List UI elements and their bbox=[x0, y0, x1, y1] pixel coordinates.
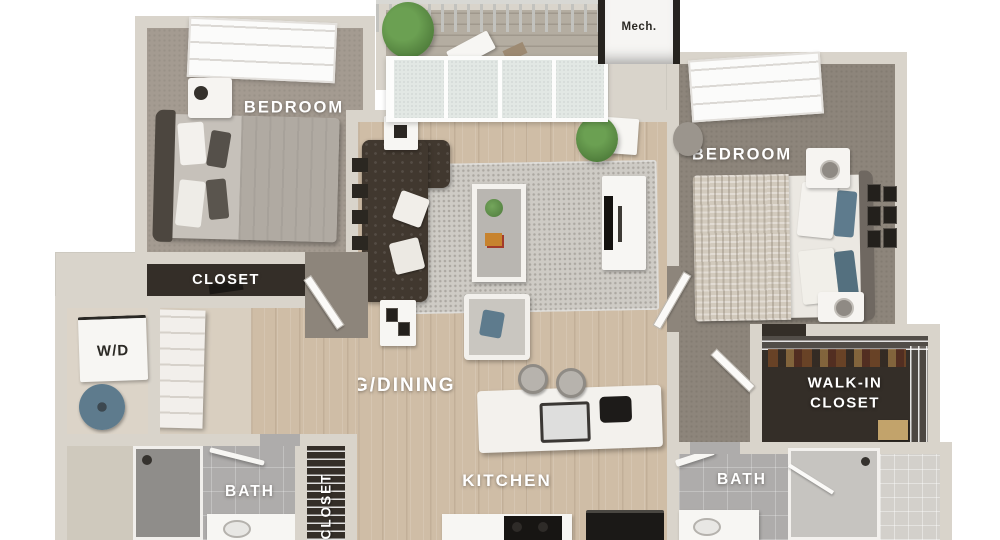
shower bbox=[788, 448, 880, 540]
washer-dryer: W/D bbox=[78, 315, 148, 382]
bedroom-right-label: BEDROOM bbox=[692, 146, 792, 165]
hall-closet-label: CLOSET bbox=[319, 473, 334, 540]
pillow-dark bbox=[206, 178, 230, 220]
soundbar bbox=[618, 206, 622, 242]
stove bbox=[504, 516, 562, 540]
pillow-dark bbox=[206, 130, 232, 169]
closet-left-label: CLOSET bbox=[192, 272, 260, 288]
walk-in-line2: CLOSET bbox=[808, 393, 883, 413]
coffee-maker bbox=[599, 396, 632, 423]
shower-head bbox=[142, 455, 152, 465]
nightstand bbox=[188, 78, 232, 118]
shower-door bbox=[788, 464, 834, 495]
bath-left: BATH bbox=[55, 434, 307, 540]
burner bbox=[512, 522, 522, 532]
sofa bbox=[362, 140, 450, 302]
armchair bbox=[464, 294, 530, 360]
storage-basket bbox=[878, 420, 908, 440]
bar-stool bbox=[518, 364, 548, 394]
books bbox=[485, 233, 502, 246]
bath-right: BATH bbox=[667, 442, 952, 540]
table-lamp bbox=[834, 298, 854, 318]
shower bbox=[133, 446, 203, 540]
duvet bbox=[238, 116, 339, 243]
hall-closet: CLOSET bbox=[295, 434, 357, 540]
doorway-floor bbox=[260, 434, 300, 446]
decor-frame bbox=[398, 322, 410, 336]
table-lamp bbox=[820, 160, 840, 180]
laundry-basket bbox=[79, 384, 125, 430]
pillow bbox=[177, 122, 206, 166]
walk-in-line1: WALK-IN bbox=[808, 374, 883, 394]
headboard bbox=[152, 110, 175, 242]
tv bbox=[604, 196, 613, 250]
bath-right-label: BATH bbox=[717, 471, 767, 489]
nightstand bbox=[806, 148, 850, 188]
nightstand bbox=[818, 292, 864, 322]
decor-item bbox=[394, 125, 407, 138]
window-blinds bbox=[187, 17, 337, 83]
side-table bbox=[380, 300, 416, 346]
hallway-nook bbox=[148, 296, 251, 446]
laundry-room: W/D bbox=[55, 296, 160, 446]
dresser bbox=[154, 309, 205, 428]
reading-chair bbox=[673, 122, 703, 156]
tile-accent bbox=[880, 454, 940, 540]
bed bbox=[158, 114, 339, 243]
walk-in-closet-label: WALK-IN CLOSET bbox=[808, 374, 883, 413]
gallery-frames bbox=[867, 184, 897, 250]
burner bbox=[538, 522, 548, 532]
vanity bbox=[679, 510, 759, 540]
potted-plant bbox=[382, 2, 434, 58]
bath-mat-tile bbox=[67, 446, 133, 540]
sink bbox=[539, 401, 590, 443]
vanity bbox=[207, 514, 295, 540]
pillow bbox=[175, 179, 206, 228]
gallery-frames bbox=[352, 146, 368, 250]
towel-bar bbox=[209, 447, 265, 465]
bedroom-left-label: BEDROOM bbox=[244, 99, 344, 118]
hanging-clothes bbox=[768, 349, 906, 367]
bar-stool bbox=[556, 368, 586, 398]
tv-console bbox=[602, 176, 646, 270]
kitchen-label: KITCHEN bbox=[462, 471, 552, 491]
decor-frame bbox=[386, 308, 398, 322]
bath-left-label: BATH bbox=[225, 483, 275, 501]
laundry-label: W/D bbox=[97, 342, 130, 360]
walk-in-closet: WALK-IN CLOSET bbox=[750, 324, 940, 454]
sink-basin bbox=[693, 518, 721, 536]
living-dining: LIVING/DINING KITCHEN bbox=[346, 110, 679, 540]
shower-head bbox=[861, 457, 870, 466]
corner-plant bbox=[576, 116, 618, 162]
knit-throw bbox=[693, 174, 792, 322]
doorway-floor bbox=[690, 442, 740, 454]
sliding-glass-door bbox=[386, 56, 608, 122]
wire-shelf-unit bbox=[910, 346, 928, 442]
doorway-floor bbox=[762, 324, 806, 336]
coffee-table bbox=[472, 184, 526, 282]
wire-shelf bbox=[762, 336, 928, 350]
pillow-blue bbox=[479, 309, 505, 338]
pillow-blue bbox=[833, 190, 857, 238]
mech-label: Mech. bbox=[621, 21, 656, 33]
table-plant bbox=[485, 199, 503, 217]
sink-basin bbox=[223, 520, 251, 538]
pillow bbox=[797, 182, 838, 239]
mechanical-closet: Mech. bbox=[598, 0, 680, 64]
refrigerator bbox=[586, 510, 664, 540]
decor-item bbox=[194, 86, 208, 100]
bedroom-left: BEDROOM bbox=[135, 16, 375, 264]
window-blinds bbox=[688, 51, 824, 122]
floor-plan: Mech. BEDROOM CLOSET bbox=[0, 0, 1000, 540]
